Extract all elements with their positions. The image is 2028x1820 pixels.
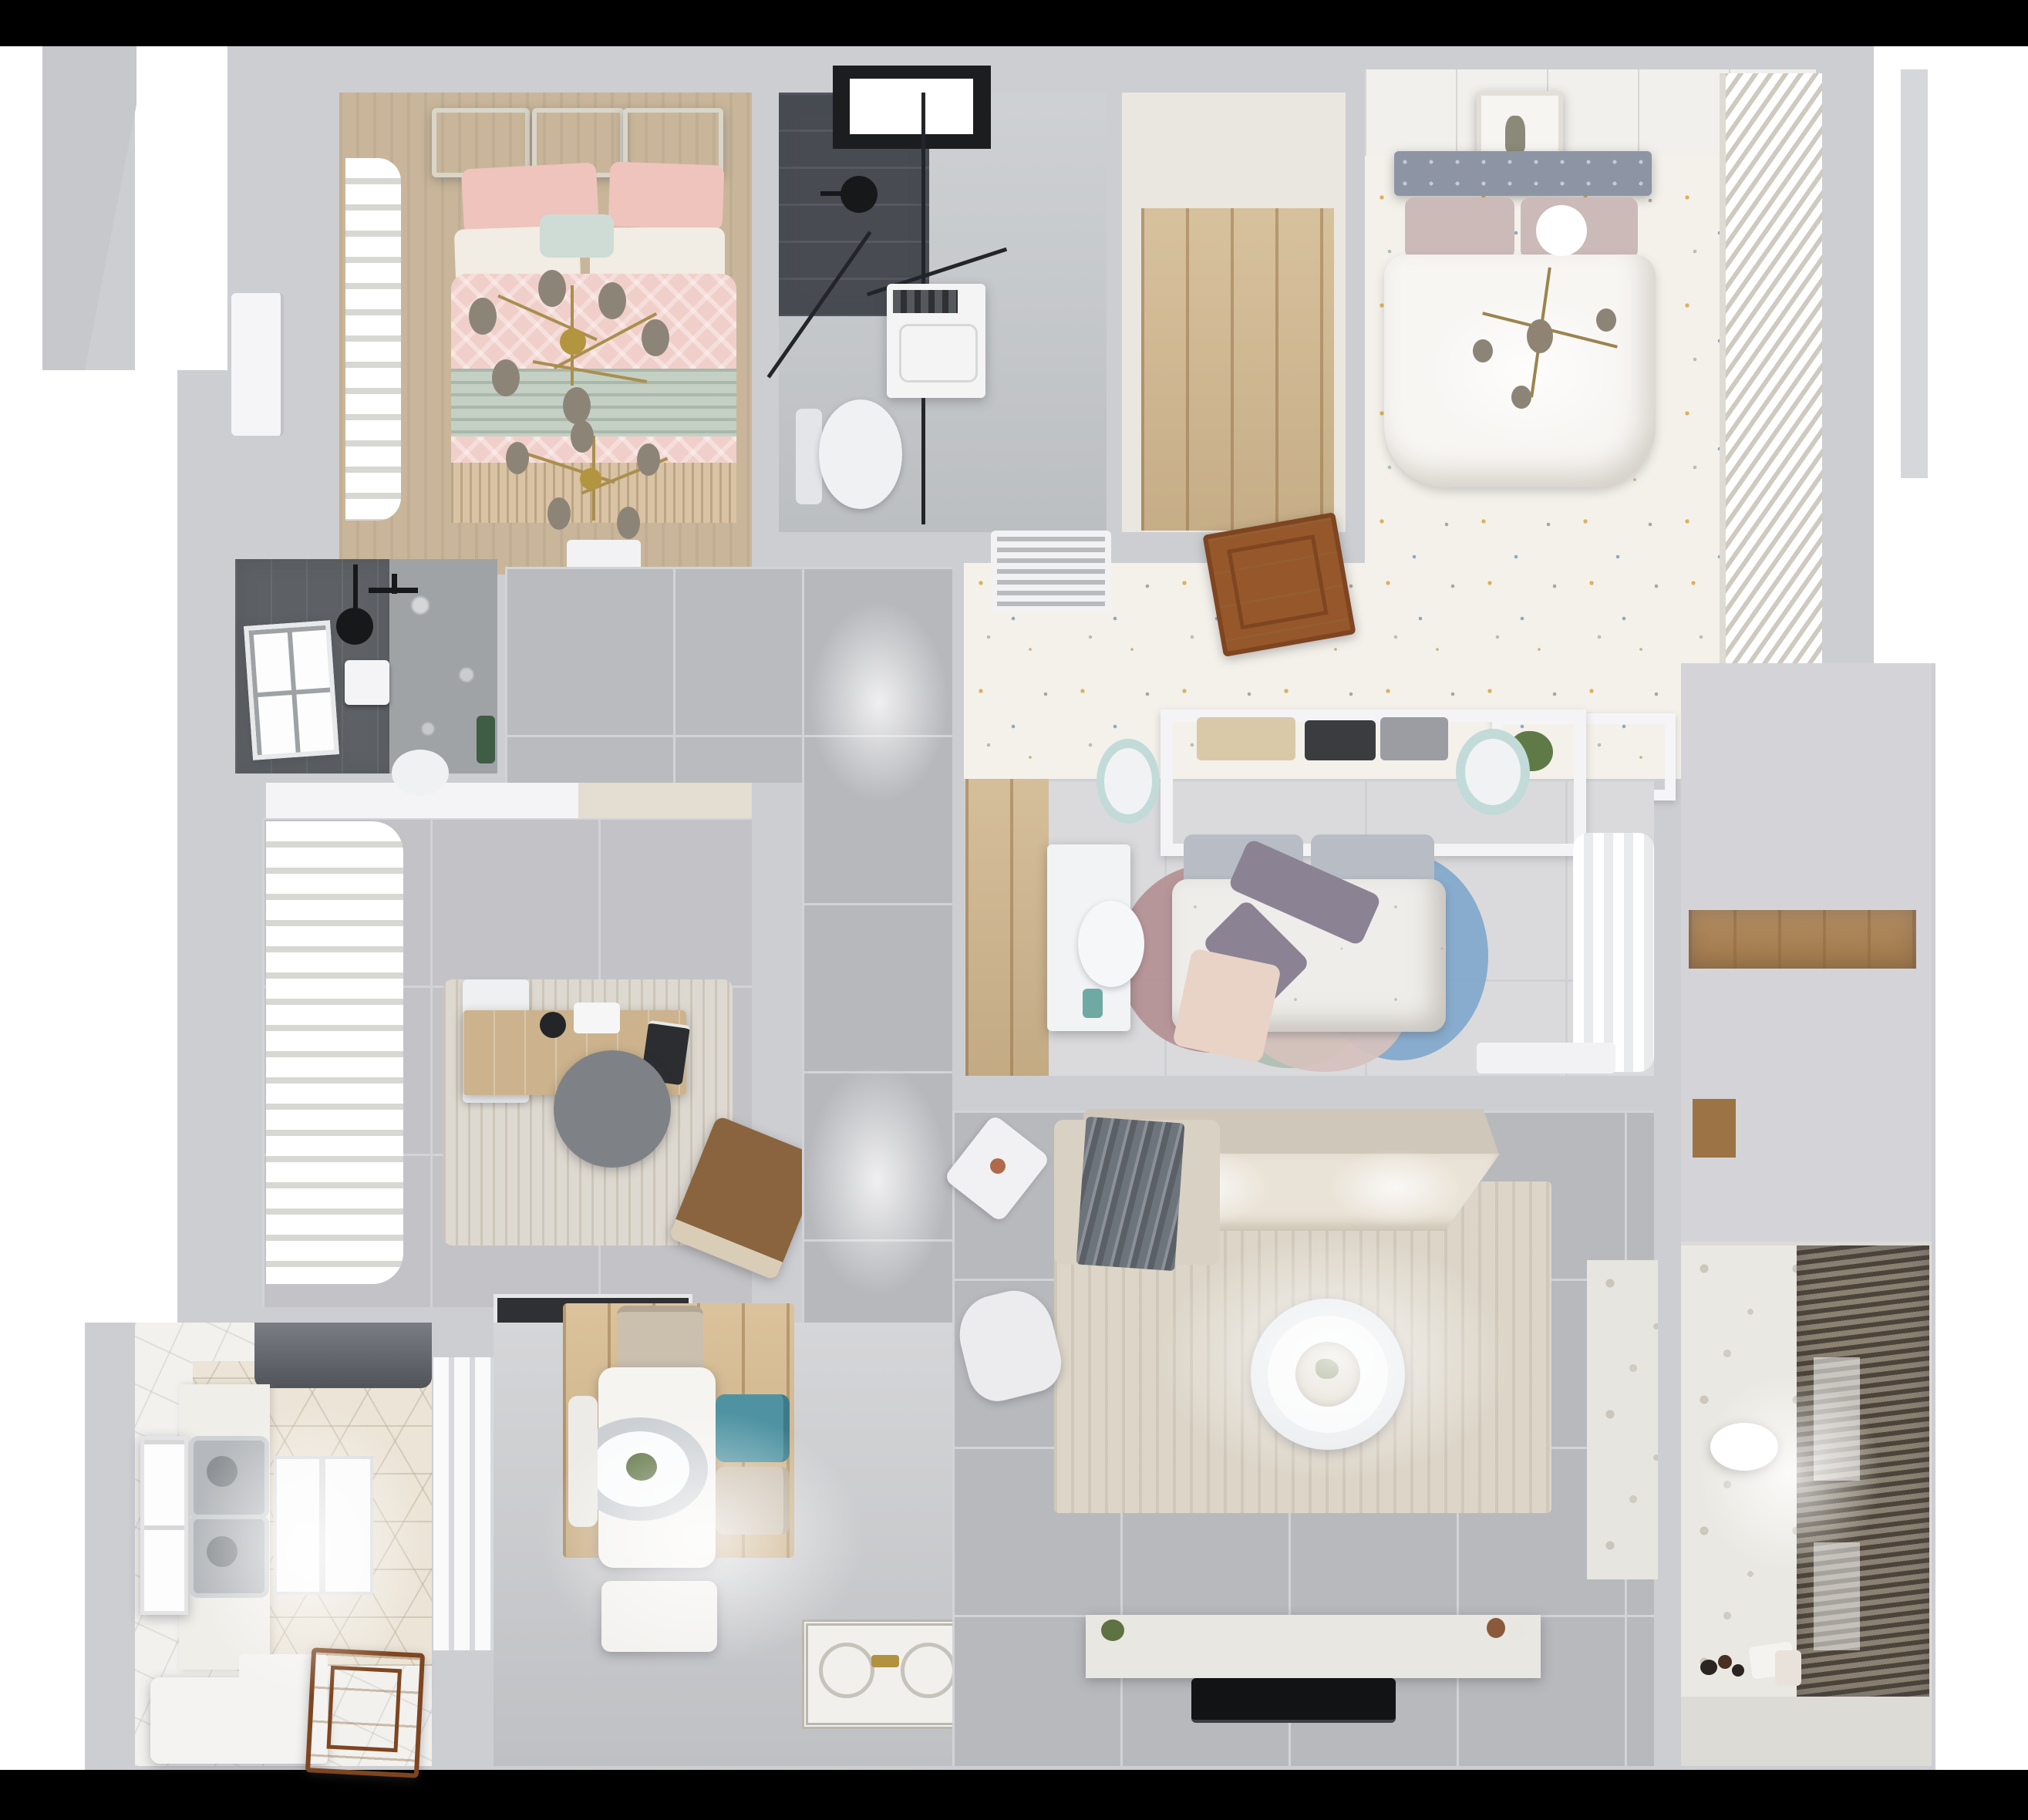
toy-dark	[1732, 1664, 1744, 1677]
bar-bottom	[0, 1770, 2028, 1820]
bed1-pillow-teal	[540, 214, 614, 258]
tv-black	[1191, 1678, 1396, 1723]
panel-white	[322, 1456, 373, 1595]
chandelier-bulb	[506, 442, 529, 474]
niche-wood	[1689, 910, 1916, 969]
skylight-glass	[850, 79, 973, 134]
bench3-white	[1477, 1043, 1615, 1073]
entry-mat	[802, 1619, 978, 1729]
ceiling-lamp-glow	[1536, 205, 1587, 256]
chandelier	[447, 254, 702, 440]
bed1-pillow-pink	[608, 161, 725, 230]
console-plant	[1101, 1619, 1124, 1641]
outer-cutout	[1935, 663, 2028, 1770]
book-tan	[1197, 717, 1295, 760]
coffee-sprig	[1316, 1359, 1339, 1379]
bed2-headboard	[1394, 151, 1652, 196]
chair-teal	[716, 1394, 790, 1462]
chandelier-bulb	[598, 282, 626, 319]
plant-dark-green	[477, 716, 495, 763]
tv-console	[1086, 1615, 1541, 1678]
pendant-plant	[626, 1453, 657, 1481]
holder-white	[345, 660, 389, 705]
sink-basin	[207, 1456, 237, 1487]
vent-grille	[991, 531, 1111, 614]
chandelier-cross	[1465, 254, 1635, 409]
side-table-flower	[990, 1158, 1006, 1174]
window-white	[140, 1436, 188, 1615]
balcony-wallpaper	[1681, 1245, 1798, 1697]
outer-cutout	[42, 370, 177, 1323]
panel-white	[274, 1456, 322, 1595]
chandelier-rod	[533, 360, 647, 383]
wood-door-panel	[1227, 534, 1328, 629]
passage-tile	[1587, 1260, 1658, 1579]
sheer-curtain	[1573, 833, 1654, 1072]
corridorA-tile	[505, 567, 802, 783]
book-gray	[1380, 717, 1448, 760]
study-curtain	[266, 821, 403, 1284]
chandelier-rod	[526, 453, 615, 484]
desk-paper	[574, 1003, 620, 1033]
bench-white	[568, 1396, 598, 1527]
washer-panel	[893, 290, 958, 313]
paper-cup	[1775, 1650, 1801, 1686]
toilet-white	[819, 399, 902, 509]
wood-door-panel	[327, 1666, 403, 1753]
shower-arm	[353, 565, 358, 612]
entry-mat-scroll	[819, 1643, 874, 1698]
wall-art-plant	[1505, 116, 1525, 153]
desk3-chair	[1078, 901, 1144, 987]
blinds-window-light	[1814, 1357, 1860, 1481]
office-chair	[554, 1050, 671, 1168]
chair-beige	[716, 1467, 790, 1535]
entry-mat-scroll	[901, 1643, 956, 1698]
wood-door	[1202, 512, 1356, 657]
outer-cutout	[135, 46, 227, 370]
washer-door-ring	[899, 324, 978, 383]
chandelier-bulb	[547, 497, 571, 530]
outer-cutout	[42, 1323, 85, 1770]
console-pot	[1487, 1618, 1505, 1638]
study-beige-band	[578, 783, 752, 818]
shower-arm	[820, 191, 867, 196]
bed2-pillow	[1405, 197, 1514, 259]
console-pot	[1508, 1621, 1525, 1640]
chandelier-bulb	[538, 270, 566, 307]
chandelier-bulb	[492, 359, 520, 396]
toilet-white	[392, 750, 449, 796]
hallway-wood	[1141, 208, 1334, 531]
sink-basin	[207, 1536, 237, 1567]
chandelier-bulb	[1511, 386, 1531, 409]
niche-wood-small	[1693, 1099, 1736, 1158]
glass-sliding-door	[433, 1357, 494, 1650]
chandelier-bulb	[617, 507, 640, 539]
desk3-teal-bottle	[1083, 989, 1103, 1018]
chandelier-bulb	[642, 319, 669, 356]
cabinet-white	[601, 1581, 717, 1652]
shower-head-dark	[336, 608, 373, 645]
kitchen-hood	[254, 1323, 432, 1388]
balcony-light	[1710, 1423, 1778, 1471]
chandelier-gold-node	[560, 329, 586, 355]
window-white	[244, 620, 339, 760]
corridor-tile	[802, 567, 952, 1326]
wall-art-print	[655, 117, 682, 159]
toy-dark	[1700, 1660, 1717, 1675]
chandelier-bulb	[1596, 308, 1616, 332]
toilet-tank	[796, 409, 822, 504]
blinds-window-light	[1814, 1542, 1860, 1650]
pouf-top	[1104, 748, 1152, 814]
chandelier-bulb	[469, 298, 497, 335]
wall-art-print	[444, 119, 490, 157]
chandelier-bulb	[571, 420, 594, 453]
closet-louver	[1720, 73, 1822, 663]
outer-cutout	[1874, 46, 2028, 663]
blanket-gray	[1076, 1117, 1184, 1271]
wall-sliver	[1901, 69, 1928, 478]
entry-mat-handles	[871, 1655, 899, 1667]
bedroom3-wood-strip	[965, 779, 1049, 1076]
bar-top	[0, 0, 2028, 46]
pouf-top	[1465, 739, 1521, 805]
door-leaf	[231, 293, 284, 436]
kitchen-door-wood	[305, 1647, 425, 1778]
chandelier-bulb	[1473, 339, 1493, 362]
chandelier-bulb	[563, 387, 591, 424]
chandelier-bulb	[637, 443, 660, 476]
desk-mug	[540, 1012, 566, 1038]
chandelier-gold-node	[580, 468, 601, 490]
book-dark	[1305, 720, 1376, 760]
chandelier-gold-node	[1527, 319, 1553, 353]
bedroom1-curtain	[345, 158, 401, 521]
chandelier	[494, 420, 694, 551]
toy-brown	[1718, 1655, 1732, 1669]
shower-fixture	[392, 574, 397, 594]
